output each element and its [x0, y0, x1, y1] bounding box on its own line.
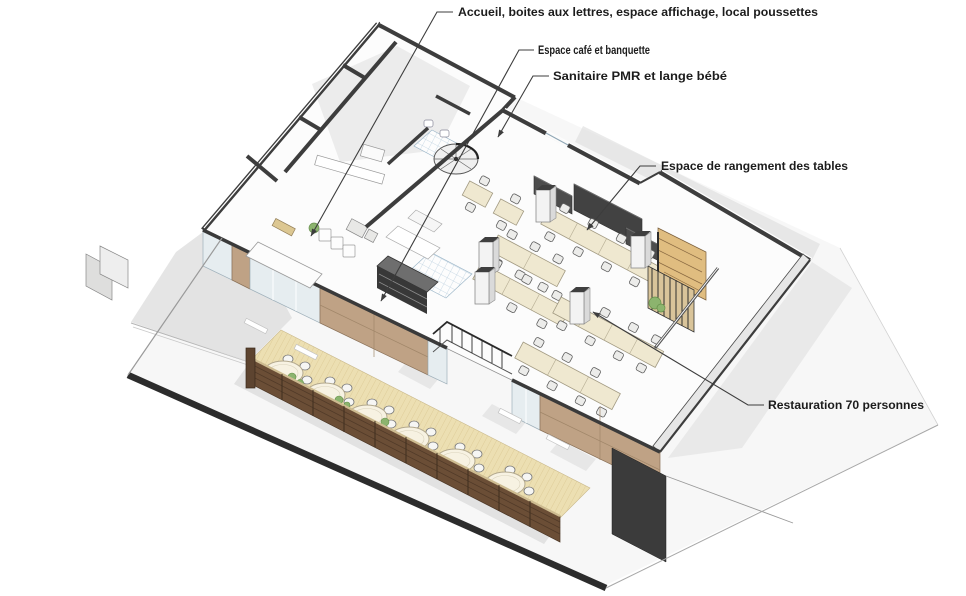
- floor-plan-figure: Accueil, boites aux lettres, espace affi…: [0, 0, 966, 596]
- column: [536, 185, 556, 222]
- annotation-accueil: Accueil, boites aux lettres, espace affi…: [458, 5, 818, 19]
- annotation-rangement: Espace de rangement des tables: [661, 159, 848, 173]
- letterbox-unit: [331, 237, 343, 249]
- sanitary-fixture: [424, 120, 433, 127]
- column: [631, 231, 651, 268]
- letterbox-unit: [319, 229, 331, 241]
- west-annex: [86, 246, 128, 300]
- annotation-cafe: Espace café et banquette: [538, 43, 650, 57]
- indoor-plant: [657, 304, 665, 312]
- axonometric-floor-plan: Accueil, boites aux lettres, espace affi…: [0, 0, 966, 596]
- baby-change-fixture: [440, 130, 449, 137]
- annotation-sanitaire: Sanitaire PMR et lange bébé: [553, 69, 727, 83]
- letterbox-unit: [343, 245, 355, 257]
- column: [475, 267, 495, 304]
- annotation-restauration: Restauration 70 personnes: [768, 398, 924, 412]
- column: [570, 287, 590, 324]
- fence-end-post: [246, 348, 255, 388]
